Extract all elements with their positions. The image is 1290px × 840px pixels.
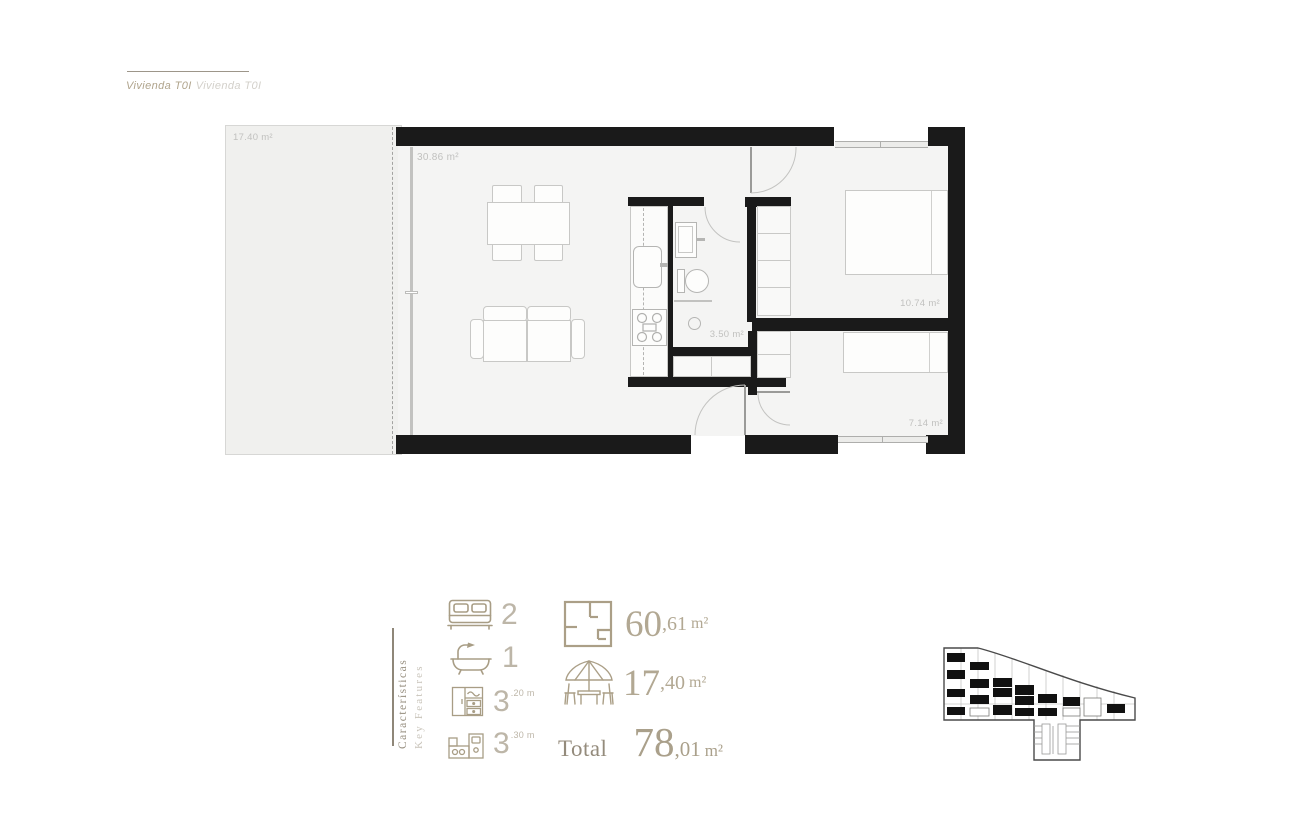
storage-under-bath [673,356,751,377]
terrace-area-fraction: ,40 [660,672,685,695]
building-key-plan [938,642,1138,766]
page: { "header": { "title_primary": "Vivienda… [0,0,1290,840]
stair-tower [1034,724,1080,754]
terrace-icon [561,658,617,708]
wardrobe-cell [757,287,791,316]
total-area-fraction: ,01 [674,737,700,762]
kitchen-sink [633,246,662,288]
kitchen-faucet [660,263,668,267]
bathtub-icon [448,640,494,676]
sofa-seat [527,320,571,362]
wardrobe-cell [757,354,791,378]
shower-screen [674,300,712,302]
features-rule [392,628,394,746]
bed-single [843,332,948,373]
toilet-bowl [685,269,709,293]
feature-row-bedrooms: 2 [447,598,518,632]
features-heading-es: Características [397,625,409,749]
wardrobe-cell [757,331,791,355]
interior-area-unit: m² [691,615,708,633]
storage-cell [673,356,712,377]
stove-burners [632,309,667,346]
bed-pillow-line [931,191,932,274]
toilet-tank [677,269,685,293]
bathroom-area-label: 3.50 m² [702,329,744,340]
dining-table [487,202,570,245]
feature-row-bathrooms: 1 [448,640,519,676]
terrace-area-value: 17 [623,665,660,702]
kitchen-length: 3 [493,729,510,759]
total-area-value: 78 [633,722,674,763]
dining-chair [534,243,563,261]
wardrobe-cell [757,233,791,261]
dining-chair [492,243,522,261]
wardrobe-icon [451,686,485,718]
bedrooms-count: 2 [501,600,518,630]
sofa-armrest [571,319,585,359]
bedroom2-area-label: 7.14 m² [898,418,943,429]
living-area-label: 30.86 m² [417,152,459,163]
kitchen-icon [447,728,485,760]
area-row-interior: 60,61m² [563,600,708,648]
wardrobe-cell [757,260,791,288]
kitchen-counter-edge [643,208,644,375]
area-row-terrace: 17,40m² [561,658,706,708]
feature-row-kitchen: 3.30 m [447,728,535,760]
feature-row-wardrobe: 3.20 m [451,686,535,718]
features-heading-en: Key Features [413,625,425,749]
terrace-area-unit: m² [689,674,706,692]
total-label: Total [558,736,607,762]
sofa-armrest [470,319,484,359]
total-area-unit: m² [705,741,723,761]
wardrobe-length: 3 [493,687,510,717]
unit-outlines [970,698,1101,716]
bedroom1-area-label: 10.74 m² [895,298,940,309]
wardrobe-column [757,206,791,316]
floorplan-icon [563,600,613,648]
bed-icon [447,598,493,632]
kitchen-counter [630,206,668,377]
total-row: Total 78,01m² [558,722,723,763]
wardrobe-column [757,331,791,378]
sofa-seat [483,320,527,362]
interior-area-fraction: ,61 [662,613,687,636]
wardrobe-length-sup: .20 m [511,688,535,698]
shower-drain [688,317,701,330]
bed-pillow-line [929,333,930,372]
wardrobe-cell [757,206,791,234]
vanity-basin [678,226,693,253]
kitchen-length-sup: .30 m [511,730,535,740]
storage-cell [711,356,751,377]
bed-double [845,190,948,275]
vanity-faucet [697,238,705,241]
interior-area-value: 60 [625,606,662,643]
bathrooms-count: 1 [502,643,519,673]
